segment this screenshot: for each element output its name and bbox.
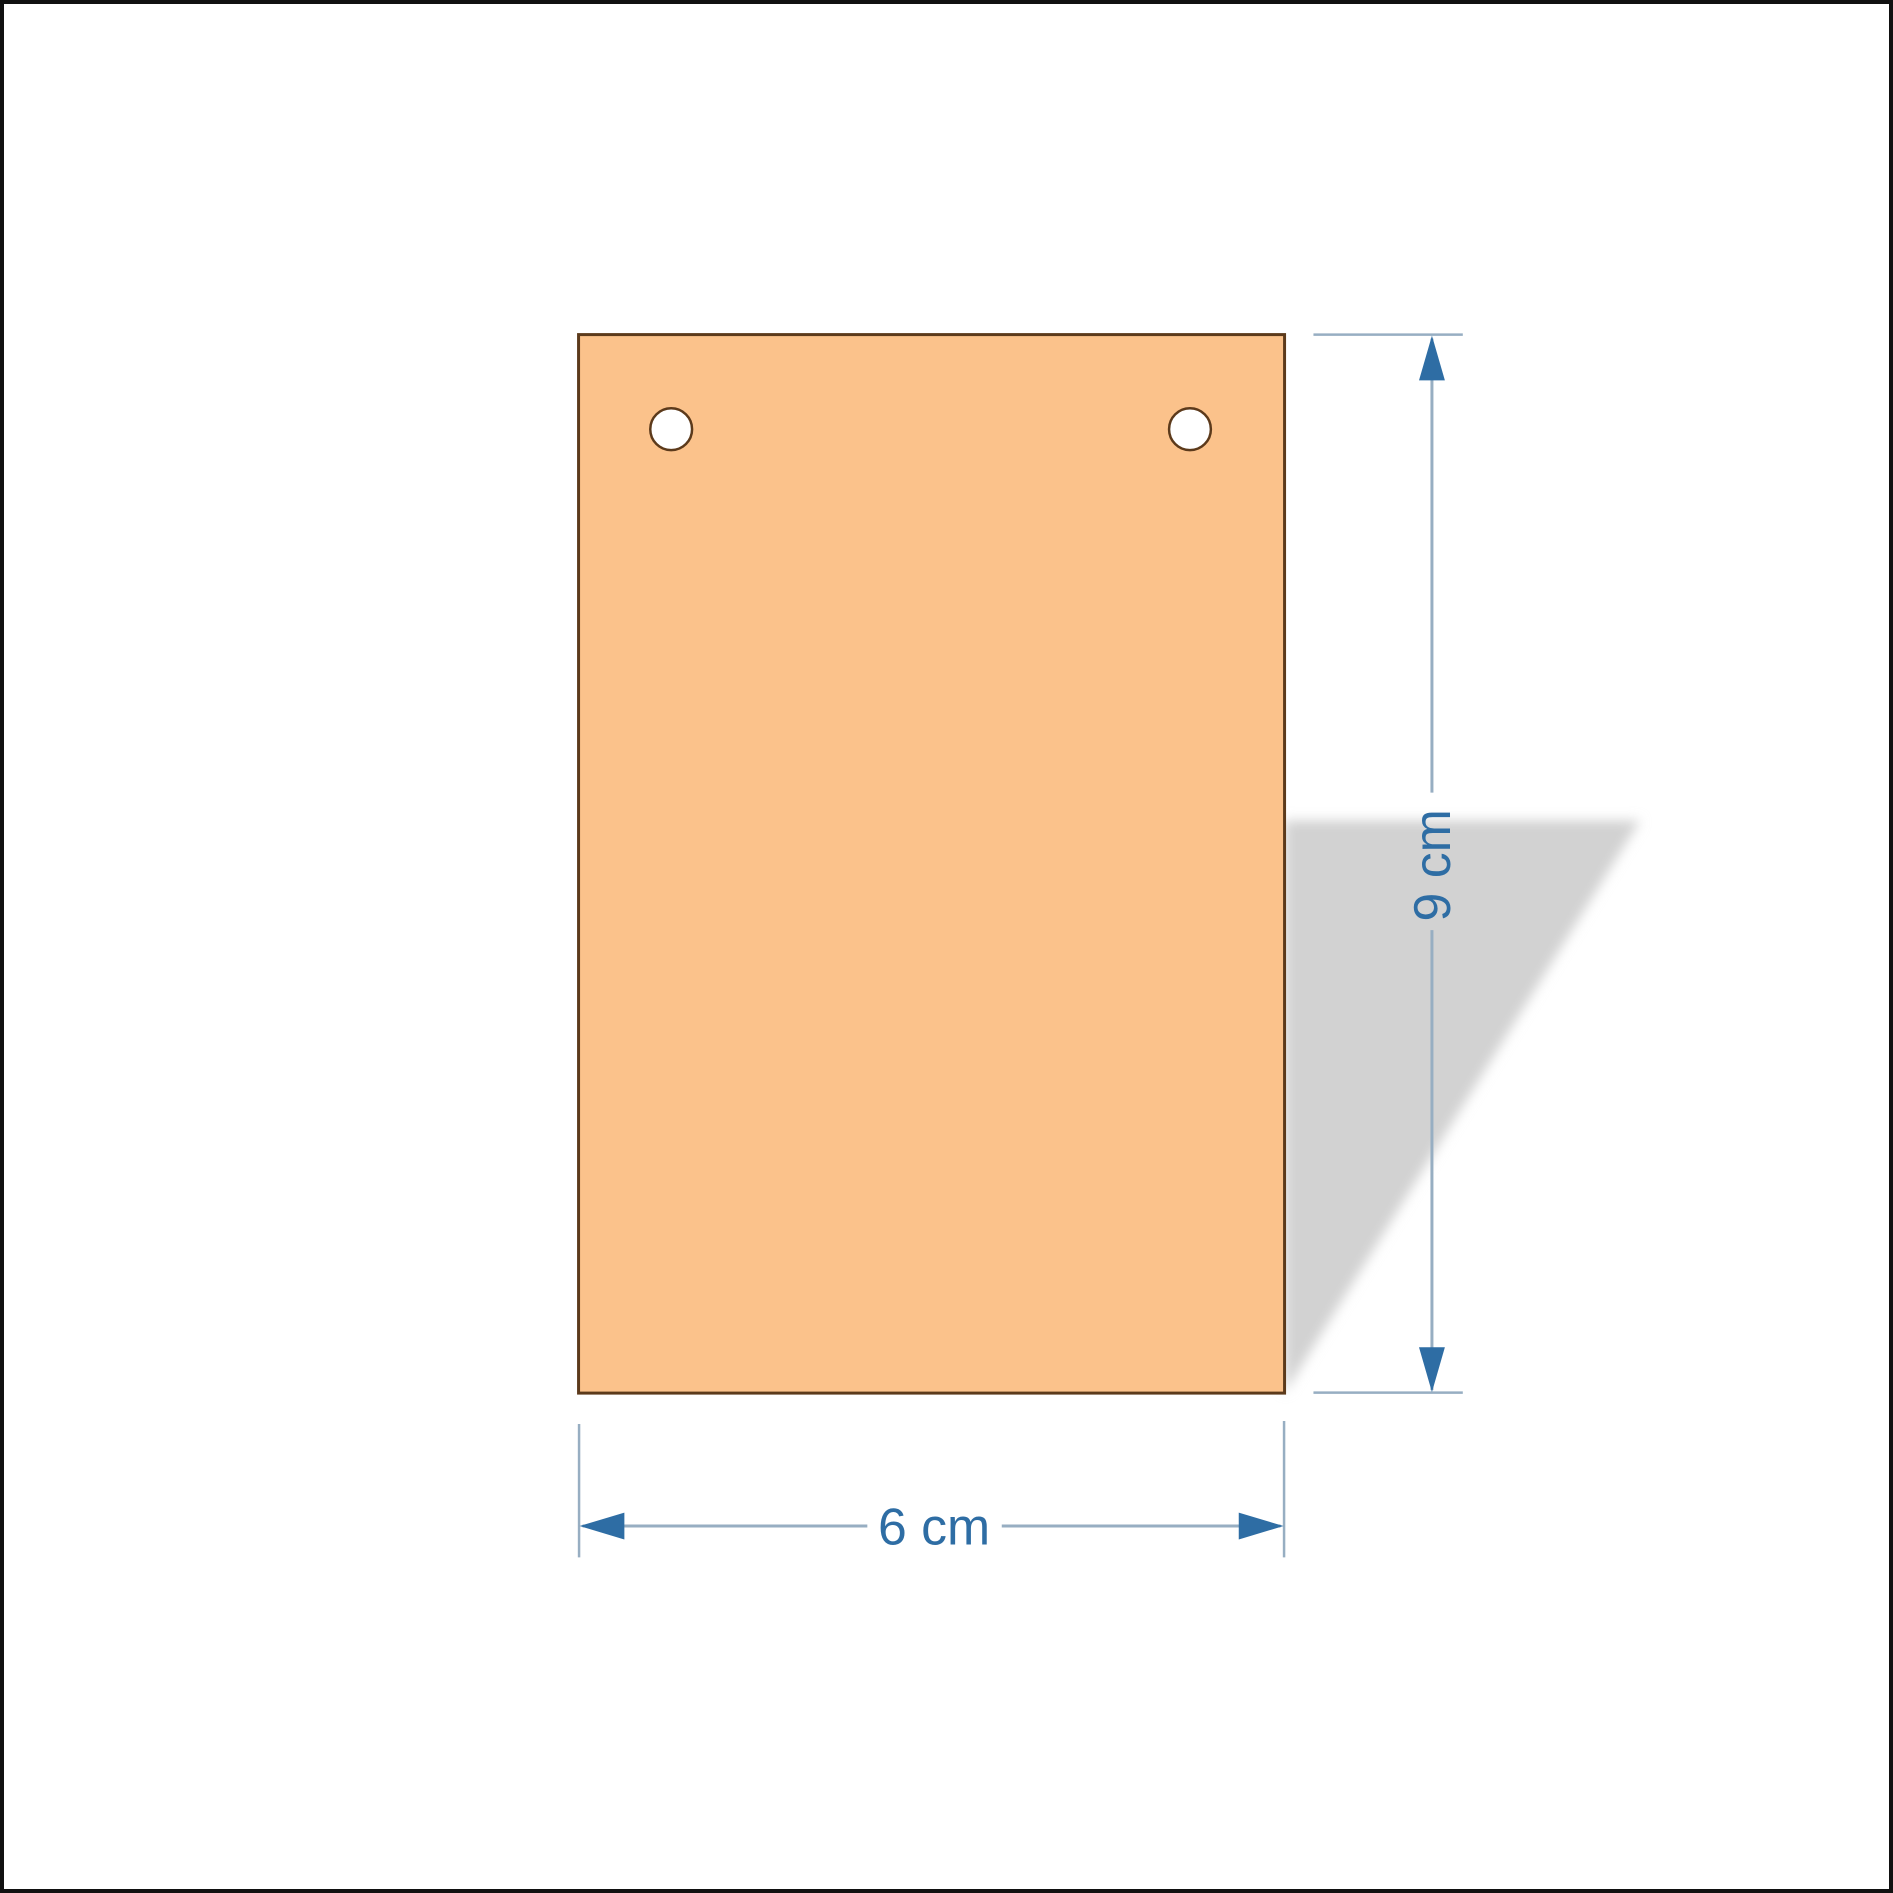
arrowhead-down-icon xyxy=(1419,1347,1445,1392)
arrowhead-right-icon xyxy=(1239,1513,1284,1540)
width-dimension: 6 cm xyxy=(579,1421,1284,1557)
plaque-dimension-diagram: 9 cm 6 cm xyxy=(4,4,1889,1889)
width-dimension-label: 6 cm xyxy=(878,1497,990,1555)
hanging-hole-left xyxy=(650,408,692,450)
hanging-hole-right xyxy=(1169,408,1211,450)
arrowhead-left-icon xyxy=(580,1513,625,1540)
diagram-canvas: 9 cm 6 cm xyxy=(0,0,1893,1893)
plaque-panel xyxy=(579,335,1285,1394)
cast-shadow xyxy=(1285,821,1640,1394)
height-dimension-label: 9 cm xyxy=(1403,809,1461,921)
arrowhead-up-icon xyxy=(1419,336,1445,381)
